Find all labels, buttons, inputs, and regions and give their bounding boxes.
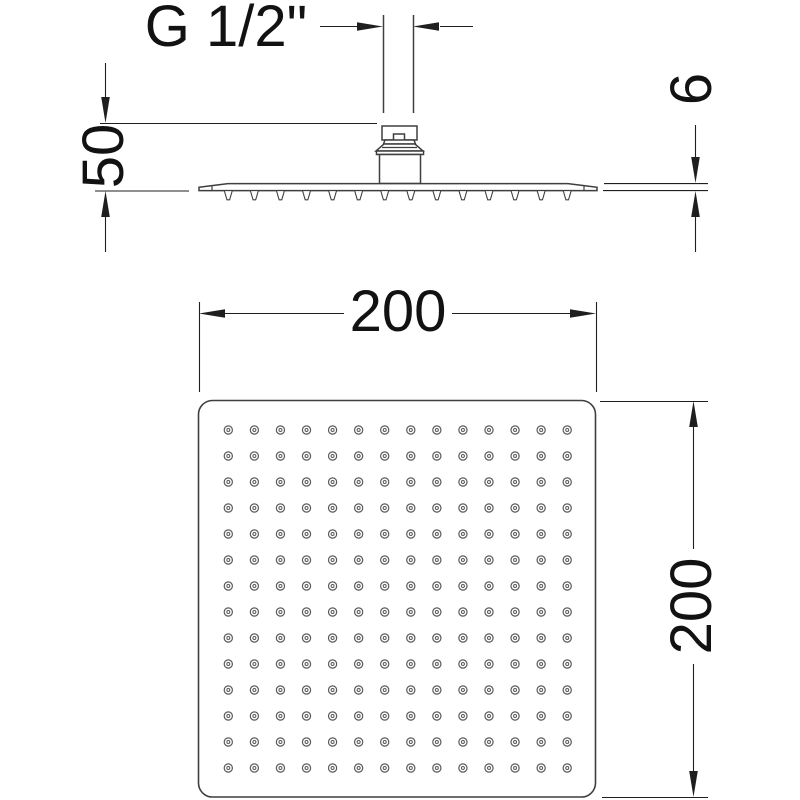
nozzle-profile	[433, 191, 441, 200]
thread-dimension-lines	[320, 22, 473, 31]
drawing-linework	[0, 0, 800, 800]
shower-plate-face	[199, 401, 596, 798]
nozzle-profile	[329, 191, 337, 200]
nozzle-profile	[537, 191, 545, 200]
nozzle-profile	[381, 191, 389, 200]
drop-dimension-label: 50	[75, 124, 133, 189]
nozzle-profile	[303, 191, 311, 200]
side-nozzle-row	[224, 191, 571, 200]
height-dimension-label: 200	[663, 558, 721, 655]
connector-body	[380, 155, 421, 184]
drop-dimension-lines	[95, 63, 377, 252]
thickness-dimension-label: 6	[663, 73, 721, 105]
nozzle-profile	[250, 191, 258, 200]
nozzle-profile	[224, 191, 232, 200]
thickness-dimension-lines	[603, 125, 708, 252]
nozzle-profile	[459, 191, 467, 200]
pipe-connector	[376, 126, 424, 184]
width-dimension-label: 200	[350, 283, 447, 341]
nozzle-profile	[511, 191, 519, 200]
technical-drawing-canvas: G 1/2" 50 6 200 200	[0, 0, 800, 800]
supply-pipe	[384, 15, 414, 113]
nozzle-profile	[276, 191, 284, 200]
nozzle-profile	[355, 191, 363, 200]
nozzle-profile	[407, 191, 415, 200]
nozzle-profile	[485, 191, 493, 200]
shower-plate-profile	[199, 184, 597, 191]
plan-view-drawing	[199, 302, 709, 798]
nozzle-profile	[563, 191, 571, 200]
thread-size-label: G 1/2"	[145, 0, 307, 56]
